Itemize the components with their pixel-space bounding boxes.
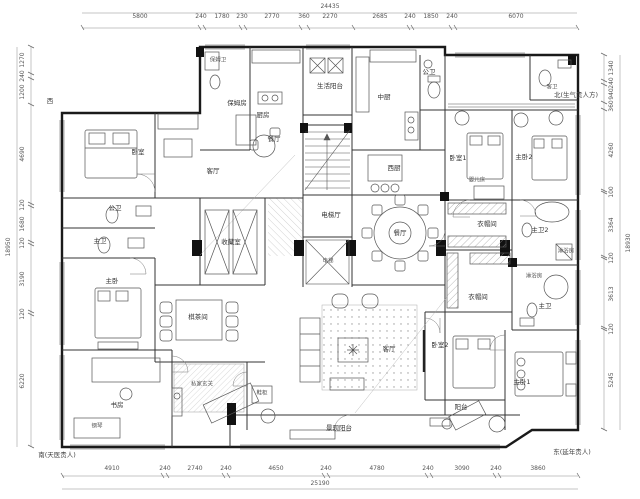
dim-left-0: 1270 [20,52,26,67]
room-label-tea-room: 棋茶间 [188,314,208,321]
dim-bottom-8: 3090 [454,466,469,472]
room-label-master-bath-left: 主卫 [94,238,107,245]
room-label-master-bath-right: 主卫 [539,303,552,310]
dim-top-9: 1850 [423,14,438,20]
dim-right-8: 3613 [609,286,615,301]
dim-top-4: 2770 [264,14,279,20]
compass-north-label: 北(生气贵人方) [554,92,598,99]
room-label-master-bedroom1: 主卧1 [513,379,530,386]
compass-south-label: 南(天医贵人) [38,452,76,459]
dim-top-8: 240 [404,14,415,20]
room-label-public-bath-left: 公卫 [109,205,122,212]
dim-right-6: 3364 [609,217,615,232]
room-label-balcony: 阳台 [455,404,468,411]
dim-bottom-10: 3860 [530,466,545,472]
dim-bottom-4: 4650 [268,466,283,472]
room-label-bedroom1: 卧室1 [449,155,466,162]
room-label-master-bedroom2: 主卧2 [515,154,532,161]
dim-bottom-9: 240 [490,466,501,472]
dim-top-1: 240 [195,14,206,20]
room-label-master-bath2: 主卫2 [531,227,548,234]
dim-bottom-5: 240 [320,466,331,472]
floor-plan-sheet: 西 北(生气贵人方) 南(天医贵人) 东(延年贵人) 24435 5800 24… [0,0,640,499]
room-label-bedroom: 卧室 [132,149,145,156]
dim-left-9: 6220 [20,373,26,388]
dim-top-3: 230 [236,14,247,20]
room-label-elevator: 电梯 [322,259,333,265]
dim-right-3: 360 [609,100,615,111]
room-label-cloakroom1: 衣帽间 [477,221,497,228]
dim-left-5: 1680 [20,216,26,231]
dim-bottom-overall: 25190 [310,481,329,487]
dim-top-5: 360 [298,14,309,20]
room-label-shower2: 淋浴房 [526,274,543,280]
room-label-collection-room: 收藏室 [221,239,241,246]
dim-left-2: 1200 [20,84,26,99]
dim-bottom-6: 4780 [369,466,384,472]
dim-right-overall: 18930 [626,233,632,252]
room-label-western-kitchen: 西厨 [388,165,401,172]
compass-east-label: 东(延年贵人) [553,449,591,456]
dim-left-6: 120 [20,237,26,248]
dim-left-8: 120 [20,308,26,319]
dim-right-10: 5245 [609,372,615,387]
room-label-private-foyer: 私家玄关 [191,382,213,388]
room-label-family-room: 客厅 [207,168,220,175]
room-label-guest-bath: 客卫 [546,85,557,91]
room-label-bedroom2: 卧室2 [431,342,448,349]
dim-top-11: 6070 [508,14,523,20]
dim-left-1: 240 [20,70,26,81]
room-label-shoe-cabinet: 鞋柜 [256,391,267,397]
room-label-living-room: 客厅 [383,346,396,353]
dim-top-10: 240 [446,14,457,20]
dim-top-overall: 24435 [320,4,339,10]
dim-left-overall: 18950 [6,237,12,256]
room-label-service-balcony: 生活阳台 [317,83,343,90]
room-label-nanny-bath: 保姆卫 [210,58,227,64]
dim-right-0: 1340 [609,60,615,75]
room-label-chinese-kitchen: 中厨 [378,94,391,101]
dim-right-9: 120 [609,323,615,334]
dim-top-2: 1780 [214,14,229,20]
dim-right-1: 240 [609,77,615,88]
dim-left-7: 3190 [20,271,26,286]
dim-top-7: 2685 [372,14,387,20]
room-label-dining-room: 餐厅 [394,230,407,237]
compass-west-label: 西 [47,98,54,105]
dim-top-0: 5800 [132,14,147,20]
dim-right-2: 940 [609,88,615,99]
room-label-master-bedroom: 主卧 [106,278,119,285]
dim-bottom-2: 2740 [187,466,202,472]
room-label-piano: 钢琴 [91,424,102,430]
dim-right-5: 100 [609,186,615,197]
room-label-study: 书房 [111,402,124,409]
dim-right-7: 120 [609,252,615,263]
dim-bottom-3: 240 [220,466,231,472]
dim-bottom-7: 240 [422,466,433,472]
room-label-public-bath-top: 公卫 [423,69,436,76]
dim-left-3: 4690 [20,146,26,161]
dim-bottom-1: 240 [159,466,170,472]
room-label-nanny-room: 保姆房 [227,100,247,107]
room-label-breakfast-dining: 餐厅 [268,136,281,143]
room-label-crib: 婴儿床 [469,178,486,184]
dim-left-4: 120 [20,199,26,210]
dim-right-4: 4260 [609,142,615,157]
dim-top-6: 2270 [322,14,337,20]
room-label-elevator-hall: 电梯厅 [321,212,341,219]
room-label-kitchen: 厨房 [257,112,270,119]
room-label-cloakroom2: 衣帽间 [468,294,488,301]
room-label-shower1: 淋浴房 [558,249,575,255]
dim-bottom-0: 4910 [104,466,119,472]
room-label-view-balcony: 景观阳台 [326,425,352,432]
